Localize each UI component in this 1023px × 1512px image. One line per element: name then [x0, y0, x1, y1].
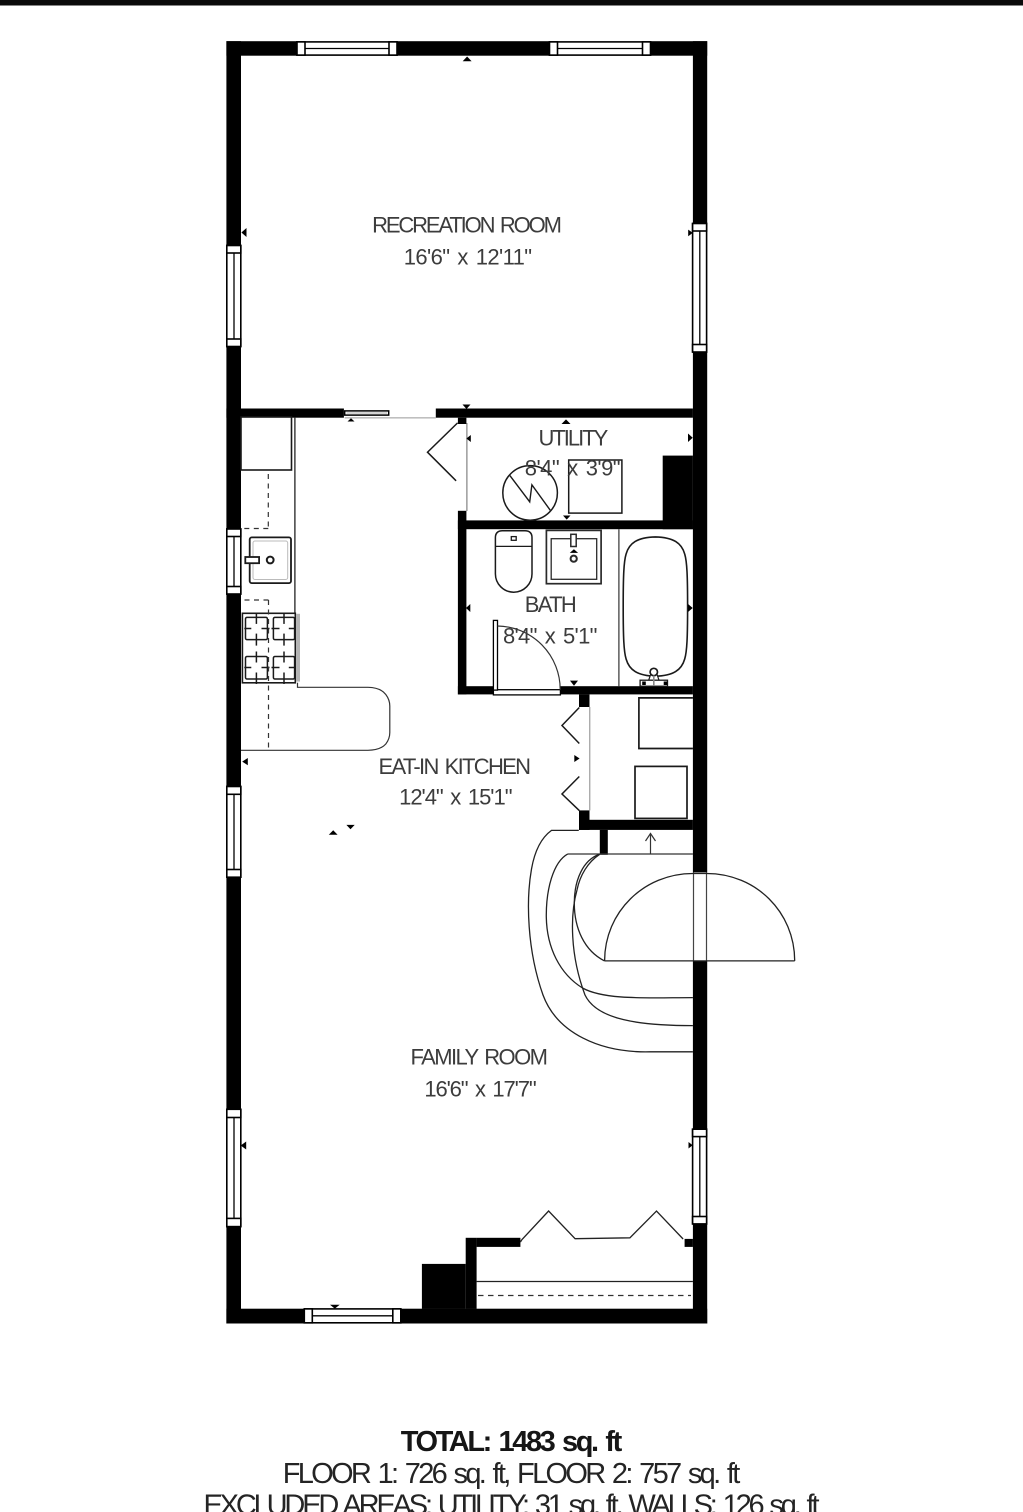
svg-text:EXCLUDED AREAS: UTILITY: 31 sq: EXCLUDED AREAS: UTILITY: 31 sq. ft, WALL… — [204, 1490, 820, 1512]
svg-text:EAT-IN KITCHEN: EAT-IN KITCHEN — [379, 754, 532, 779]
svg-text:12'4" x 15'1": 12'4" x 15'1" — [399, 785, 512, 810]
svg-text:TOTAL: 1483 sq. ft: TOTAL: 1483 sq. ft — [401, 1426, 623, 1458]
svg-text:FAMILY ROOM: FAMILY ROOM — [410, 1045, 548, 1070]
svg-text:BATH: BATH — [525, 592, 577, 617]
svg-text:8'4" x 5'1": 8'4" x 5'1" — [503, 624, 598, 649]
svg-text:8'4" x 3'9": 8'4" x 3'9" — [525, 456, 621, 481]
svg-text:UTILITY: UTILITY — [539, 426, 609, 451]
svg-text:RECREATION ROOM: RECREATION ROOM — [372, 213, 562, 238]
svg-text:16'6" x 17'7": 16'6" x 17'7" — [424, 1076, 536, 1101]
svg-text:16'6" x 12'11": 16'6" x 12'11" — [404, 244, 532, 269]
svg-text:FLOOR 1: 726 sq. ft, FLOOR 2:: FLOOR 1: 726 sq. ft, FLOOR 2: 757 sq. ft — [283, 1458, 741, 1490]
